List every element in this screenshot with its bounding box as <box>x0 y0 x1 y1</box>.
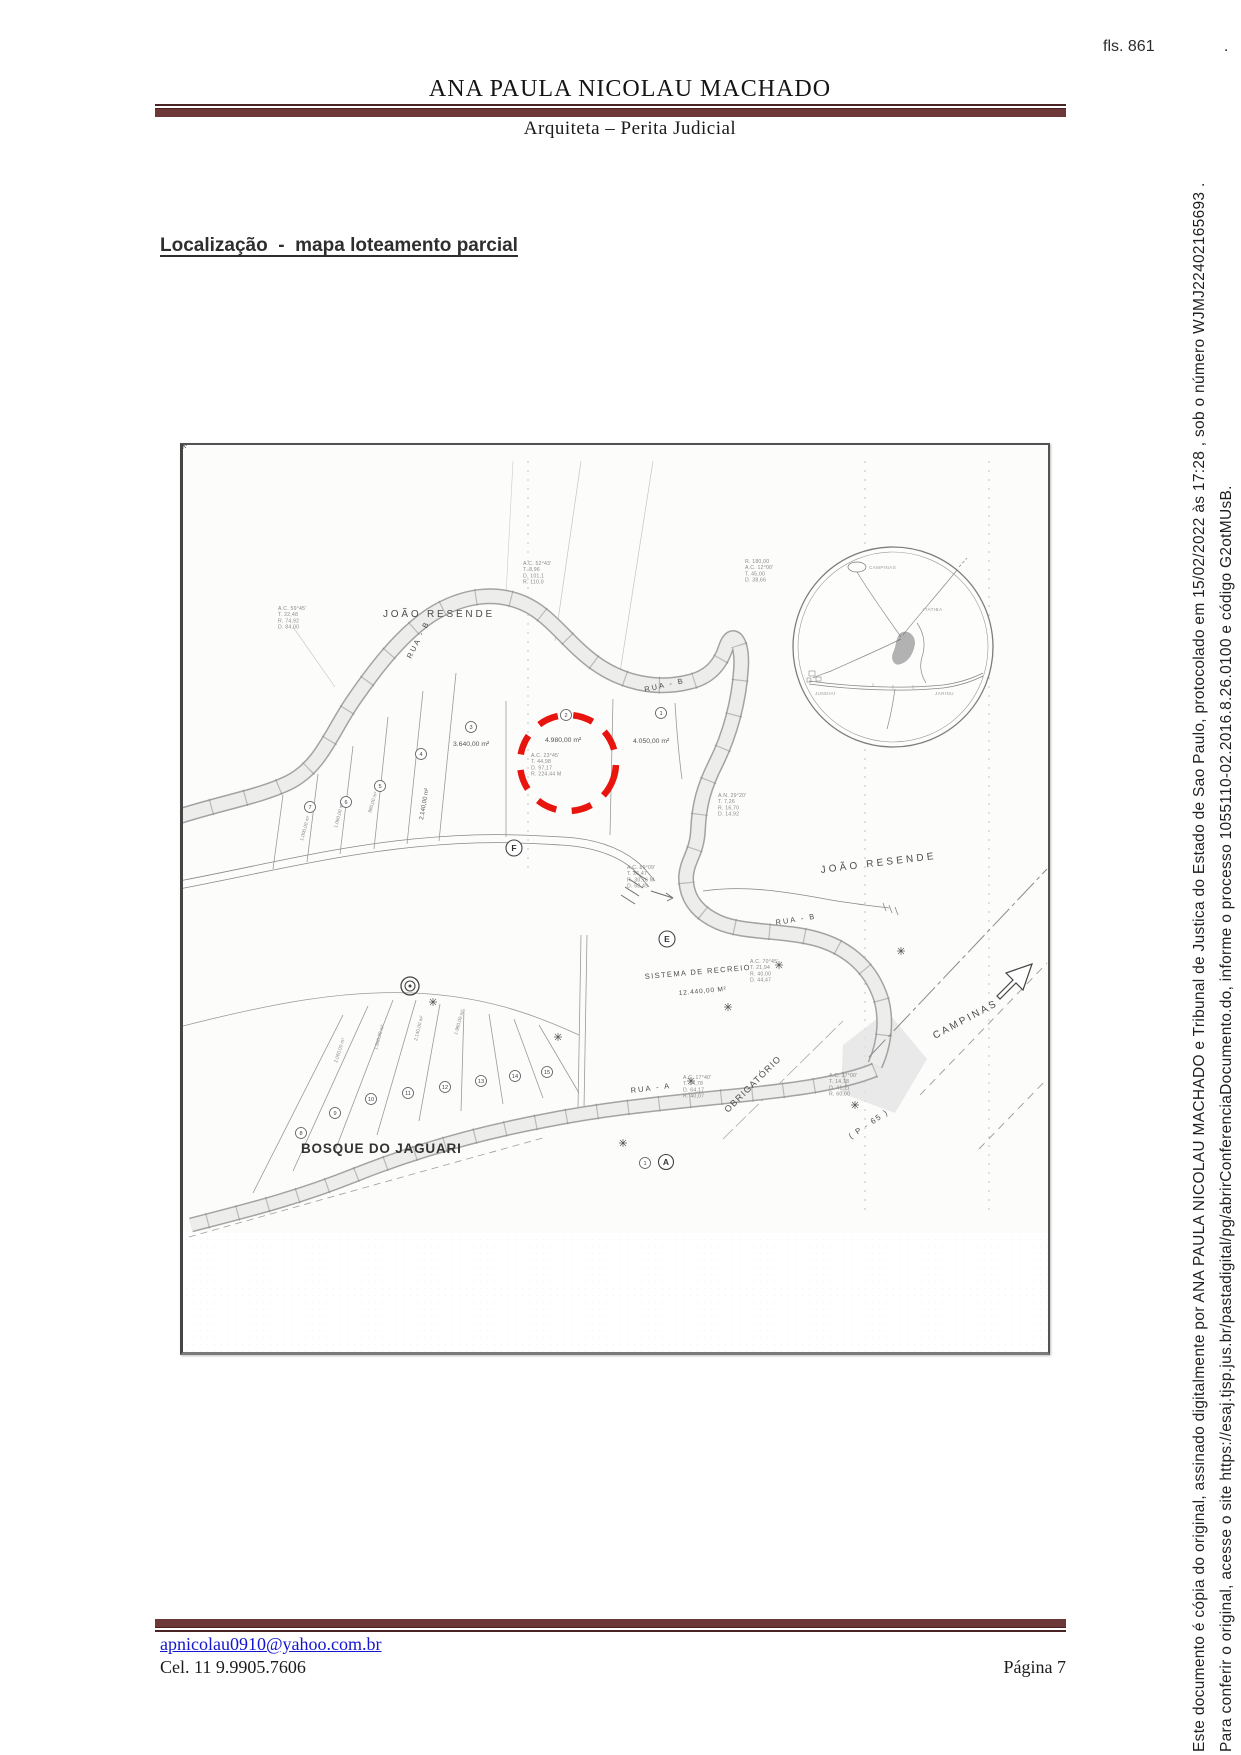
lot-number: 3 <box>469 725 472 731</box>
esaj-signature-stamp: Este documento é cópia do original, assi… <box>1186 27 1240 1752</box>
label-bosque-do-jaguari: BOSQUE DO JAGUARI <box>301 1141 462 1156</box>
email-link[interactable]: apnicolau0910@yahoo.com.br <box>160 1634 382 1655</box>
lot-number: 11 <box>405 1091 411 1097</box>
block-letter-f: F <box>511 843 516 853</box>
section-heading: Localização - mapa loteamento parcial <box>160 235 518 257</box>
lot-number: 1 <box>643 1161 646 1167</box>
stamp-line-1: Este documento é cópia do original, assi… <box>1186 27 1213 1752</box>
header-rule-thick <box>155 108 1066 117</box>
block-letter-e: E <box>664 934 670 944</box>
stamp-trailing-dot: . <box>1224 38 1228 56</box>
lot-number: 10 <box>368 1097 374 1103</box>
block-letter-a: A <box>663 1157 669 1167</box>
inset-map: CAMPINAS ITATIBA JUNDIAÍ JARINU <box>793 547 993 747</box>
header-rule-thin <box>155 104 1066 106</box>
inset-town-label: ITATIBA <box>923 607 943 612</box>
stamp-line-2: Para conferir o original, acesse o site … <box>1213 27 1240 1752</box>
lot-number: 14 <box>512 1074 518 1080</box>
footer-rule-thick <box>155 1619 1066 1628</box>
inset-town-label: JARINU <box>935 691 954 696</box>
subdivision-map: F E A 7 6 5 4 3 2 1 8 9 10 <box>183 445 1048 1352</box>
lot-area-left: 3.640,00 m² <box>453 741 490 748</box>
page-number: Página 7 <box>155 1657 1066 1678</box>
lot-number: 8 <box>299 1131 302 1137</box>
lot-number: 4 <box>419 752 422 758</box>
lot-area-right: 4.050,00 m² <box>633 738 670 745</box>
header-subtitle: Arquiteta – Perita Judicial <box>155 118 1105 140</box>
lot-number: 9 <box>333 1111 336 1117</box>
lot-number: 13 <box>478 1079 484 1085</box>
label-joao-resende-top: JOÃO RESENDE <box>383 607 495 620</box>
document-page: fls. 861 ANA PAULA NICOLAU MACHADO Arqui… <box>0 0 1241 1755</box>
map-figure: F E A 7 6 5 4 3 2 1 8 9 10 <box>180 443 1050 1355</box>
page-title: ANA PAULA NICOLAU MACHADO <box>155 76 1105 103</box>
lot-number: 2 <box>564 713 567 719</box>
folio-number: fls. 861 <box>1103 38 1155 56</box>
lot-number: 1 <box>659 711 662 717</box>
lot-area-highlight: 4.980,00 m² <box>545 737 582 744</box>
inset-town-label: CAMPINAS <box>869 565 896 570</box>
lot-number: 7 <box>308 805 311 811</box>
lot-number: 5 <box>378 784 381 790</box>
inset-town-label: JUNDIAÍ <box>815 690 836 696</box>
lot-number: 12 <box>442 1085 448 1091</box>
lot-number: 15 <box>544 1070 550 1076</box>
footer-rule-thin <box>155 1630 1066 1632</box>
